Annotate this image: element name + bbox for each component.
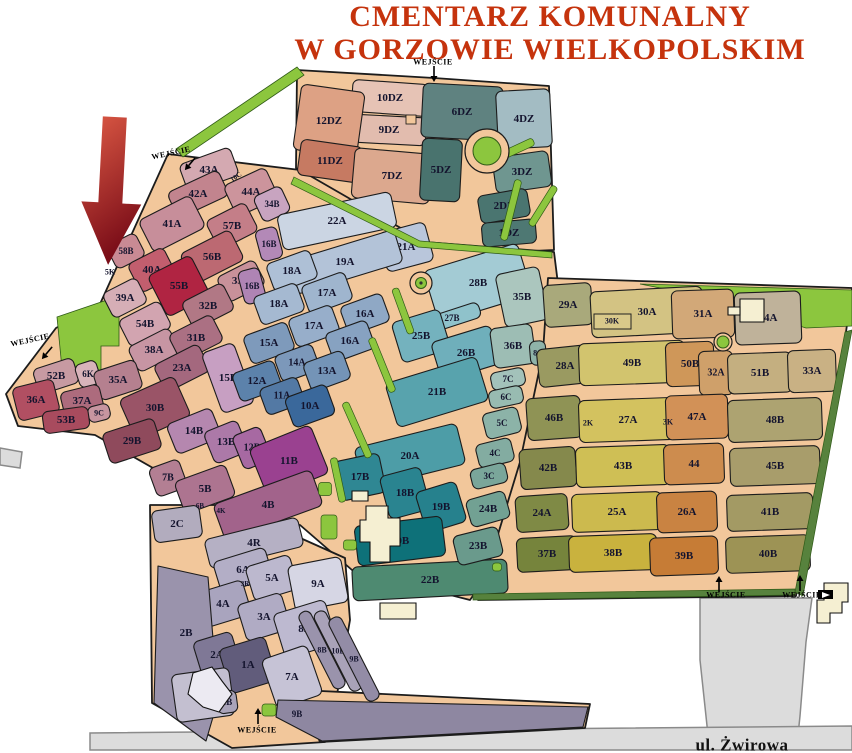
- section-label: 13A: [318, 365, 337, 377]
- section-label: 7DZ: [382, 170, 403, 182]
- green-strip: [344, 540, 357, 550]
- section-47A: 47A: [665, 394, 728, 440]
- section-label: 41A: [163, 218, 182, 230]
- section-label: 14B: [185, 425, 204, 437]
- section-label: 4A: [216, 598, 230, 610]
- section-label: 2C: [170, 518, 184, 530]
- section-label: 5DZ: [431, 164, 452, 176]
- section-48B: 48B: [727, 397, 822, 442]
- section-label: 30A: [638, 306, 657, 318]
- section-label: 7A: [285, 671, 299, 683]
- section-label: 19A: [336, 256, 355, 268]
- section-label: 56B: [203, 251, 222, 263]
- section-label: 3A: [257, 611, 271, 623]
- section-label: 7C: [503, 374, 514, 384]
- section-label: 27B: [444, 313, 459, 323]
- section-label: 33A: [803, 365, 822, 377]
- section-label: 16B: [261, 239, 276, 249]
- small-label-3R: 3R: [241, 580, 251, 588]
- section-label: 49B: [623, 357, 642, 369]
- section-label: 11B: [280, 455, 298, 467]
- section-label: 39A: [116, 292, 135, 304]
- section-label: 32A: [707, 368, 725, 379]
- section-label: 45B: [766, 460, 785, 472]
- section-label: 58B: [118, 246, 133, 256]
- green-strip: [321, 515, 337, 539]
- section-26A: 26A: [656, 491, 717, 533]
- small-label-5K: 5K: [105, 268, 116, 277]
- section-46B: 46B: [526, 395, 583, 441]
- section-label: 25A: [608, 506, 627, 518]
- building-shape: [728, 307, 740, 315]
- section-label: 9C: [94, 409, 104, 418]
- small-label-3K: 3K: [663, 418, 674, 427]
- section-label: 9B: [349, 655, 359, 664]
- section-33A: 33A: [787, 349, 836, 393]
- section-label: 23A: [173, 362, 192, 374]
- section-label: 36B: [504, 340, 523, 352]
- cemetery-map: CMENTARZ KOMUNALNY W GORZOWIE WIELKOPOLS…: [0, 0, 852, 753]
- section-label: 28A: [556, 360, 575, 372]
- section-51B: 51B: [727, 352, 792, 394]
- section-label: 18B: [396, 487, 415, 499]
- section-label: 4DZ: [514, 113, 535, 125]
- building-shape: [740, 299, 764, 322]
- section-label: 15A: [260, 337, 279, 349]
- section-41B: 41B: [726, 493, 813, 532]
- section-label: 12A: [248, 375, 267, 387]
- section-40B: 40B: [725, 535, 810, 574]
- section-label: 27A: [619, 414, 638, 426]
- section-label: 38B: [604, 547, 623, 559]
- section-31A: 31A: [671, 289, 735, 339]
- section-label: 6K: [82, 369, 94, 379]
- small-label-text: 5K: [105, 268, 116, 277]
- section-label: 17B: [351, 471, 370, 483]
- section-label: 43B: [614, 460, 633, 472]
- section-label: 8B: [317, 646, 327, 655]
- section-label: 19B: [432, 501, 451, 513]
- small-label-30K: 30K: [594, 314, 631, 329]
- section-label: 23B: [469, 540, 488, 552]
- section-label: 38A: [145, 344, 164, 356]
- section-label: 24B: [479, 503, 498, 515]
- section-label: 4B: [262, 499, 276, 511]
- section-39B: 39B: [649, 536, 718, 576]
- section-label: 10DZ: [377, 92, 403, 104]
- section-label: 18A: [283, 265, 302, 277]
- section-label: 4R: [247, 537, 262, 549]
- roundabout-green: [473, 137, 501, 165]
- small-label-text: 3R: [241, 580, 251, 588]
- section-label: 26A: [678, 506, 697, 518]
- section-label: 39B: [675, 550, 694, 562]
- section-label: 5A: [265, 572, 279, 584]
- section-label: 29B: [123, 435, 142, 447]
- section-label: 25B: [412, 330, 431, 342]
- section-label: 3DZ: [512, 166, 533, 178]
- section-label: 32B: [199, 300, 218, 312]
- section-29A: 29A: [543, 282, 594, 327]
- building-shape: [380, 603, 416, 619]
- section-43B: 43B: [575, 444, 670, 487]
- section-label: 20A: [401, 450, 420, 462]
- street-label: ul. Żwirowa: [695, 736, 788, 753]
- section-2C: 2C: [151, 505, 203, 543]
- small-label-text: 4K: [217, 507, 227, 515]
- section-label: 40B: [759, 548, 778, 560]
- small-structure: [406, 115, 416, 124]
- section-label: 29A: [559, 299, 578, 311]
- section-label: 9B: [292, 709, 303, 719]
- section-label: 18A: [270, 298, 289, 310]
- section-label: 1A: [241, 659, 255, 671]
- section-label: 22A: [328, 215, 347, 227]
- section-label: 9DZ: [379, 124, 400, 136]
- section-label: 16A: [356, 308, 375, 320]
- section-label: 37B: [538, 548, 557, 560]
- roundabout: [465, 129, 509, 173]
- section-label: 31B: [187, 332, 206, 344]
- section-44: 44: [663, 443, 724, 485]
- section-label: 37A: [73, 395, 92, 407]
- section-label: 21B: [428, 386, 447, 398]
- roundabout-green: [717, 336, 729, 348]
- section-label: 41B: [761, 506, 780, 518]
- green-area: [176, 67, 304, 157]
- section-25A: 25A: [571, 491, 662, 532]
- section-label: 54B: [136, 318, 155, 330]
- section-label: 16A: [341, 335, 360, 347]
- section-label: 24A: [533, 507, 552, 519]
- street-area: [0, 448, 22, 468]
- entrance-label: WEJŚCIE: [706, 590, 746, 600]
- section-label: 35A: [109, 374, 128, 386]
- section-label: 46B: [545, 412, 564, 424]
- section-38B: 38B: [568, 533, 657, 572]
- small-label-text: 2K: [583, 419, 594, 428]
- section-label: 16B: [244, 281, 259, 291]
- small-label-2K: 2K: [583, 419, 594, 428]
- section-label: 34B: [264, 199, 279, 209]
- section-label: 5C: [497, 418, 508, 428]
- section-label: 7B: [162, 473, 174, 484]
- section-label: 51B: [751, 367, 770, 379]
- map-svg: 10DZ9DZ12DZ11DZ7DZ6DZ5DZ4DZ3DZ2DZ1DZ43A4…: [0, 0, 852, 753]
- small-label-text: 30K: [605, 317, 620, 326]
- section-label: 17A: [305, 320, 324, 332]
- section-label: 30B: [146, 402, 165, 414]
- section-label: 3C: [484, 471, 495, 481]
- entrance-label: WEJŚCIE: [237, 725, 277, 735]
- section-45B: 45B: [729, 445, 820, 486]
- section-label: 57B: [223, 220, 242, 232]
- section-label: 4C: [490, 448, 501, 458]
- section-label: 53B: [57, 414, 76, 426]
- section-label: 17A: [318, 287, 337, 299]
- section-label: 36A: [27, 394, 46, 406]
- roundabout: [410, 272, 432, 294]
- green-strip: [262, 704, 276, 716]
- section-5DZ: 5DZ: [419, 138, 462, 202]
- section-label: 6C: [501, 392, 512, 402]
- section-label: 10A: [301, 400, 320, 412]
- entrance-box-icon: [818, 590, 833, 599]
- entrance-label: WEJŚCIE: [782, 590, 822, 600]
- section-label: 28B: [469, 277, 488, 289]
- section-label: 5B: [199, 483, 213, 495]
- roundabout-dot: [419, 281, 422, 284]
- building-shape: [352, 491, 368, 501]
- section-label: 6DZ: [452, 106, 473, 118]
- section-label: 48B: [766, 414, 785, 426]
- section-label: 2B: [180, 627, 194, 639]
- section-label: 55B: [170, 280, 189, 292]
- section-label: 31A: [694, 308, 713, 320]
- section-label: 9A: [311, 578, 325, 590]
- small-label-text: 3K: [663, 418, 674, 427]
- section-label: 44: [689, 458, 701, 470]
- green-strip: [493, 563, 502, 571]
- roundabout: [714, 333, 732, 351]
- section-42B: 42B: [519, 446, 578, 490]
- section-label: 35B: [513, 291, 532, 303]
- green-strip: [319, 483, 332, 496]
- entrance-label: WEJŚCIE: [413, 57, 453, 67]
- section-label: 11DZ: [317, 155, 343, 167]
- street-area: [700, 598, 812, 735]
- small-label-text: 6B: [196, 502, 205, 510]
- section-label: 47A: [688, 411, 707, 423]
- section-24A: 24A: [515, 493, 569, 533]
- section-label: 12DZ: [316, 115, 342, 127]
- building-shape: [817, 583, 848, 623]
- small-label-4K: 4K: [217, 507, 227, 515]
- section-label: 50B: [681, 358, 700, 370]
- small-label-6B: 6B: [196, 502, 205, 510]
- section-label: 42B: [539, 462, 558, 474]
- section-label: 22B: [421, 574, 440, 586]
